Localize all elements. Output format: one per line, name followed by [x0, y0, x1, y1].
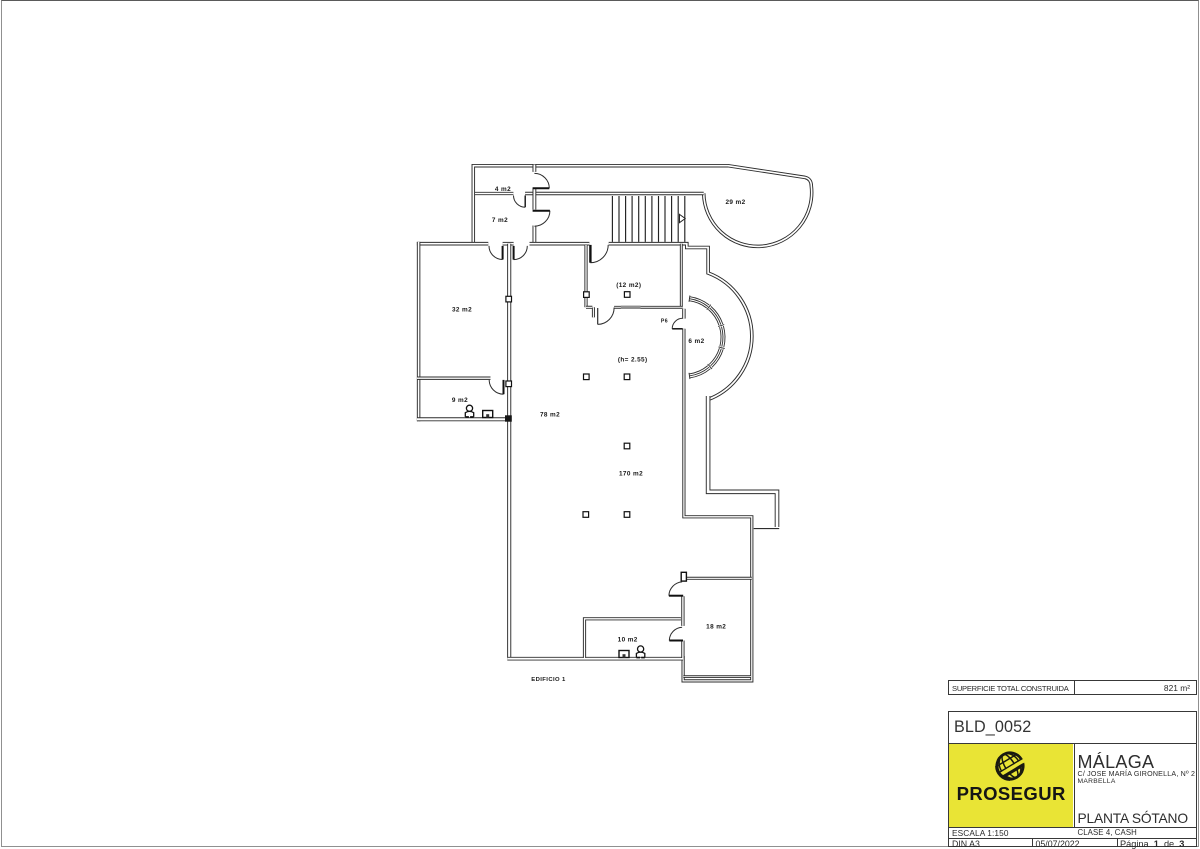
svg-text:P6: P6: [661, 319, 668, 325]
svg-text:(h= 2.55): (h= 2.55): [618, 356, 648, 363]
svg-text:10 m2: 10 m2: [618, 637, 638, 644]
svg-text:18 m2: 18 m2: [706, 623, 726, 630]
svg-text:78 m2: 78 m2: [540, 411, 560, 418]
svg-text:32 m2: 32 m2: [452, 307, 472, 314]
svg-text:6 m2: 6 m2: [688, 338, 704, 345]
svg-text:(12 m2): (12 m2): [616, 282, 641, 289]
svg-text:7 m2: 7 m2: [492, 217, 508, 224]
svg-text:9 m2: 9 m2: [452, 397, 468, 404]
svg-text:29 m2: 29 m2: [725, 199, 745, 206]
svg-text:4 m2: 4 m2: [495, 186, 511, 193]
svg-text:170 m2: 170 m2: [619, 471, 643, 478]
svg-text:EDIFICIO 1: EDIFICIO 1: [531, 677, 566, 683]
